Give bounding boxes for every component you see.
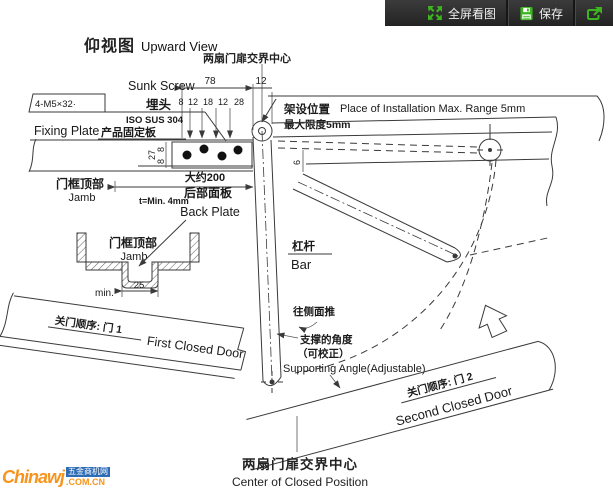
save-button-label: 保存 <box>539 5 563 22</box>
screw-hole-icon <box>200 145 209 154</box>
center-labels: 杠杆 Bar 往侧面推 支撑的角度 （可校正） Supporting Angle… <box>277 239 425 388</box>
fixing-plate-label-en: Fixing Plate <box>34 124 99 138</box>
push-side-label: 往侧面推 <box>293 305 335 318</box>
jamb-top-label-cn: 门框顶部 <box>56 176 104 191</box>
top-jamb-band <box>29 139 253 172</box>
bar-label-en: Bar <box>291 257 312 272</box>
door1-label-en: First Closed Door <box>146 334 244 361</box>
jamb-section-label-cn: 门框顶部 <box>109 235 157 250</box>
support-angle-label-cn2: （可校正） <box>297 347 350 360</box>
right-leaf-band <box>272 117 558 330</box>
dim-row-12b: 12 <box>218 97 228 107</box>
page-title: 仰视图Upward View <box>84 32 217 56</box>
bottom-label-en: Center of Closed Position <box>215 475 385 489</box>
share-icon <box>586 5 603 21</box>
bottom-label-cn: 两扇门扉交界中心 <box>215 453 385 473</box>
bar-label-cn: 杠杆 <box>292 239 315 253</box>
support-angle-label-cn: 支撑的角度 <box>299 333 353 346</box>
save-button[interactable]: 保存 <box>509 0 573 26</box>
save-icon <box>519 6 534 21</box>
jamb-top-label-en: Jamb <box>69 192 96 204</box>
dim-row-28: 28 <box>234 97 244 107</box>
fullscreen-icon <box>427 5 443 21</box>
dim-6: 6 <box>292 160 302 165</box>
screw-hole-icon <box>218 152 227 161</box>
screw-hole-icon <box>183 151 192 160</box>
door1-band: 关门顺序: 门 1 First Closed Door <box>0 291 249 379</box>
install-limit-label: 最大限度5mm <box>284 118 351 131</box>
install-label-cn: 架设位置 <box>283 102 330 116</box>
dim-row-18: 18 <box>203 97 213 107</box>
dim-row-8: 8 <box>178 97 183 107</box>
support-angle-label-en: Supporting Angle(Adjustable) <box>283 363 425 375</box>
main-arm <box>252 121 283 393</box>
watermark-site: 五金商机网 <box>66 467 110 477</box>
min-label: min. <box>95 288 114 299</box>
screw-spec-label: 4-M5×32· <box>35 99 76 110</box>
sunk-screw-label-cn: 埋头 <box>146 97 172 112</box>
screw-hole-icon <box>234 146 243 155</box>
dim-approx-200: 大约200 <box>185 170 225 184</box>
watermark: Chinawj 五金商机网 .COM.CN <box>2 467 110 487</box>
watermark-domain: .COM.CN <box>66 477 110 487</box>
dim-78: 78 <box>204 76 216 87</box>
viewer-toolbar: 全屏看图 保存 <box>385 0 613 26</box>
back-plate-label-cn: 后部面板 <box>184 185 233 200</box>
direction-arrow-icon <box>472 299 512 340</box>
sunk-screw-label-en: Sunk Screw <box>128 79 196 93</box>
top-center-label: 两扇门扉交界中心 <box>203 50 291 66</box>
title-cn: 仰视图 <box>84 38 135 55</box>
dim-8b: 8 <box>156 159 166 164</box>
share-button[interactable] <box>576 0 613 26</box>
bottom-center-label: 两扇门扉交界中心 Center of Closed Position <box>215 453 385 489</box>
door2-band: 关门顺序: 门 2 Second Closed Door <box>241 339 562 470</box>
fixing-plate-label-cn: 产品固定板 <box>101 125 157 139</box>
dim-8a: 8 <box>156 147 166 152</box>
dim-25: 25 <box>134 280 145 291</box>
fullscreen-button[interactable]: 全屏看图 <box>417 0 506 26</box>
watermark-brand: Chinawj <box>2 467 64 487</box>
t-min-label: t=Min. 4mm <box>139 196 189 206</box>
material-label: ISO SUS 304 <box>126 115 184 126</box>
back-plate-label-en: Back Plate <box>180 205 240 219</box>
jamb-cross-section: 门框顶部 Jamb 25 min. <box>77 220 199 299</box>
diagram-canvas: 78 12 8 12 18 12 28 27 8 8 大约200 6 Sunk … <box>0 0 613 496</box>
dim-row-12: 12 <box>188 97 198 107</box>
fullscreen-button-label: 全屏看图 <box>448 5 496 22</box>
dim-12: 12 <box>255 76 267 87</box>
install-label-en: Place of Installation Max. Range 5mm <box>340 103 525 115</box>
